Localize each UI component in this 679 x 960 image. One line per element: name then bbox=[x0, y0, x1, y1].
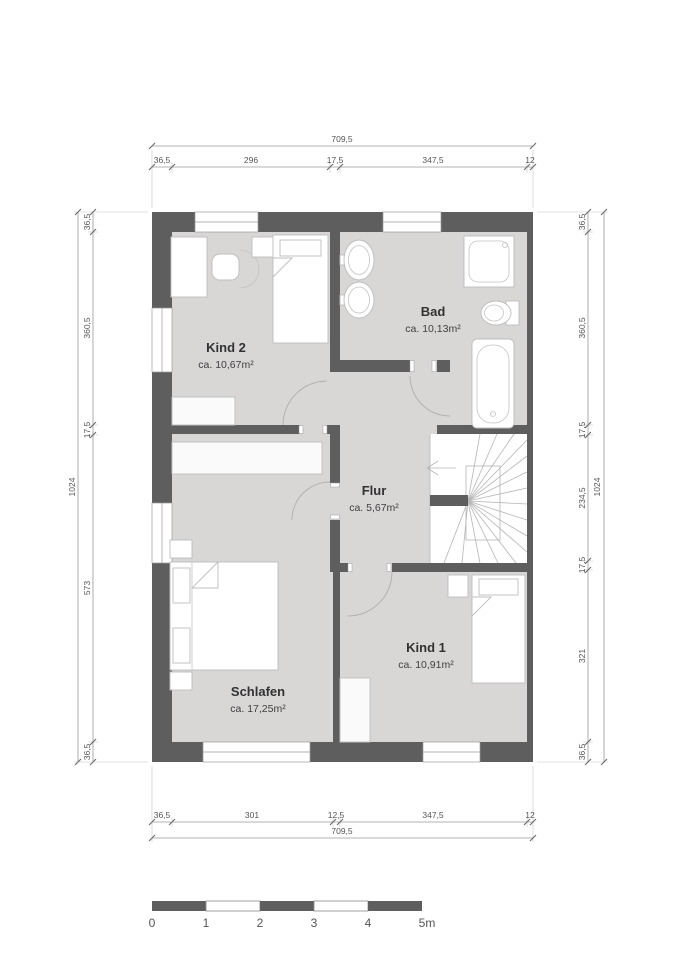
dim-top-seg-3: 347,5 bbox=[422, 155, 444, 165]
dim-bottom: 36,5 301 12,5 347,5 12 709,5 bbox=[149, 766, 536, 842]
kind1-wardrobe bbox=[340, 678, 370, 742]
dim-bottom-seg-1: 301 bbox=[245, 810, 259, 820]
room-area-kind1: ca. 10,91m² bbox=[398, 659, 454, 671]
window-bad-top bbox=[383, 212, 441, 232]
wall-kind2-bad bbox=[330, 232, 340, 360]
shower bbox=[464, 236, 514, 287]
dim-bottom-seg-3: 347,5 bbox=[422, 810, 444, 820]
scale-label-4: 4 bbox=[365, 916, 372, 930]
floorplan-page: Kind 2 ca. 10,67m² Bad ca. 10,13m² Flur … bbox=[0, 0, 679, 960]
dim-left: 36,5 360,5 17,5 573 36,5 1024 bbox=[67, 209, 148, 765]
dim-right-seg-0: 36,5 bbox=[577, 213, 587, 230]
dim-right-seg-5: 321 bbox=[577, 649, 587, 663]
wall-flur-stub bbox=[330, 360, 410, 372]
wall-bad-door-jamb bbox=[437, 360, 450, 372]
room-area-schlafen: ca. 17,25m² bbox=[230, 703, 286, 715]
kind2-bed bbox=[273, 235, 328, 343]
desk bbox=[171, 237, 207, 297]
scale-label-3: 3 bbox=[311, 916, 318, 930]
kind2-wardrobe bbox=[172, 397, 235, 425]
scale-label-1: 1 bbox=[203, 916, 210, 930]
scale-label-2: 2 bbox=[257, 916, 264, 930]
dim-bottom-total: 709,5 bbox=[331, 826, 353, 836]
wall-flur-left-lower bbox=[330, 520, 340, 572]
wall-outer-right bbox=[527, 212, 533, 762]
room-area-kind2: ca. 10,67m² bbox=[198, 359, 254, 371]
dim-right-seg-1: 360,5 bbox=[577, 317, 587, 339]
dim-bottom-seg-0: 36,5 bbox=[154, 810, 171, 820]
dim-left-seg-2: 17,5 bbox=[82, 421, 92, 438]
wall-kind1-top-left bbox=[340, 563, 348, 572]
dim-right-seg-4: 17,5 bbox=[577, 556, 587, 573]
dim-top-seg-0: 36,5 bbox=[154, 155, 171, 165]
stair-handrail bbox=[430, 495, 468, 506]
kind2-nightstand bbox=[252, 237, 274, 257]
dim-bottom-seg-2: 12,5 bbox=[328, 810, 345, 820]
dim-left-seg-1: 360,5 bbox=[82, 317, 92, 339]
room-label-kind1: Kind 1 bbox=[406, 640, 446, 655]
dim-top-seg-2: 17,5 bbox=[327, 155, 344, 165]
window-kind2-top bbox=[195, 212, 258, 232]
scale-label-5: 5m bbox=[419, 916, 436, 930]
kind1-bed bbox=[472, 575, 525, 683]
wall-flur-left-upper bbox=[330, 434, 340, 483]
room-area-bad: ca. 10,13m² bbox=[405, 323, 461, 335]
dim-left-seg-4: 36,5 bbox=[82, 743, 92, 760]
dim-top: 709,5 36,5 296 17,5 347,5 12 bbox=[149, 134, 536, 208]
window-schlafen-bottom bbox=[203, 742, 310, 762]
wall-kind1-top bbox=[392, 563, 533, 572]
floorplan-drawing: Kind 2 ca. 10,67m² Bad ca. 10,13m² Flur … bbox=[0, 0, 679, 960]
room-label-kind2: Kind 2 bbox=[206, 340, 246, 355]
dim-bottom-seg-4: 12 bbox=[525, 810, 535, 820]
dim-top-seg-4: 12 bbox=[525, 155, 535, 165]
schlafen-wardrobe bbox=[172, 442, 322, 474]
dim-right-seg-2: 17,5 bbox=[577, 421, 587, 438]
room-label-flur: Flur bbox=[362, 483, 387, 498]
dim-right-seg-6: 36,5 bbox=[577, 743, 587, 760]
wall-below-kind2 bbox=[152, 425, 300, 434]
scale-bar: 0 1 2 3 4 5m bbox=[149, 901, 436, 930]
schlafen-nightstand-top bbox=[170, 540, 192, 558]
dim-left-seg-0: 36,5 bbox=[82, 213, 92, 230]
kind1-nightstand bbox=[448, 575, 468, 597]
dim-top-seg-1: 296 bbox=[244, 155, 258, 165]
room-label-bad: Bad bbox=[421, 304, 446, 319]
dim-right-total: 1024 bbox=[592, 477, 602, 496]
dim-right: 36,5 360,5 17,5 234,5 17,5 321 36,5 1024 bbox=[537, 209, 608, 765]
window-schlafen-left bbox=[152, 503, 172, 563]
window-kind2-left bbox=[152, 308, 172, 372]
schlafen-nightstand-bottom bbox=[170, 672, 192, 690]
wall-schlafen-kind1 bbox=[333, 572, 340, 742]
dim-left-total: 1024 bbox=[67, 477, 77, 496]
wall-below-kind2-end bbox=[327, 425, 340, 434]
room-area-flur: ca. 5,67m² bbox=[349, 502, 399, 514]
dim-right-seg-3: 234,5 bbox=[577, 487, 587, 509]
wall-outer-left bbox=[152, 212, 172, 762]
bathtub bbox=[472, 339, 514, 428]
window-kind1-bottom bbox=[423, 742, 480, 762]
room-label-schlafen: Schlafen bbox=[231, 684, 285, 699]
scale-label-0: 0 bbox=[149, 916, 156, 930]
schlafen-double-bed bbox=[170, 562, 278, 670]
dim-left-seg-3: 573 bbox=[82, 581, 92, 595]
toilet bbox=[481, 301, 519, 325]
dim-top-total: 709,5 bbox=[331, 134, 353, 144]
